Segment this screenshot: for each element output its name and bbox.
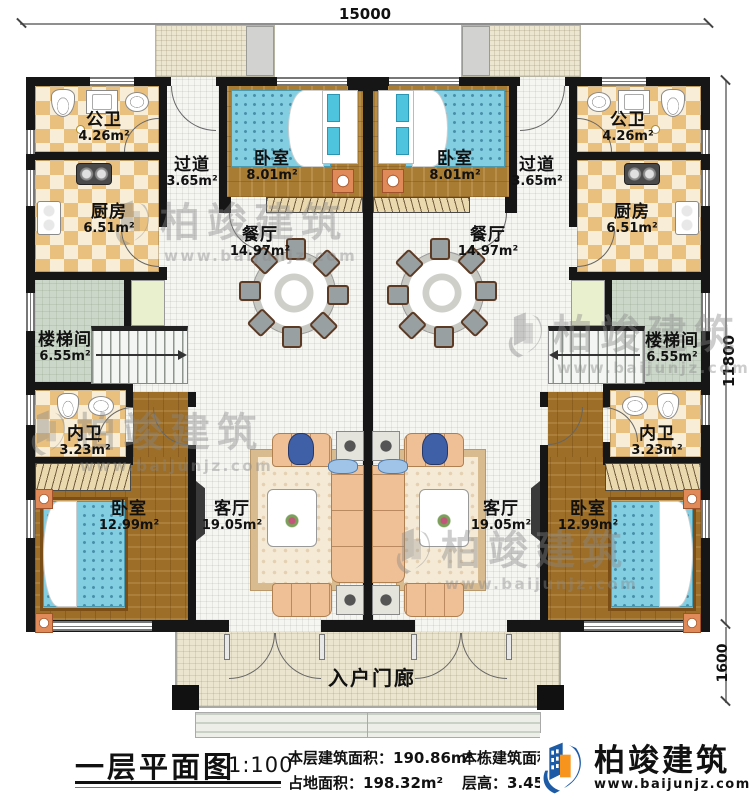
stairs-direction-arrow — [549, 350, 558, 360]
wardrobe — [35, 463, 131, 491]
door-leaf — [506, 634, 512, 660]
stat-floor-area: 本层建筑面积：190.86m² — [288, 747, 473, 768]
wall-bath-kitchen — [26, 152, 167, 160]
side-table — [336, 585, 364, 615]
wall-bottom — [321, 620, 368, 632]
brand-text-block: 柏竣建筑 www.baijunjz.com — [594, 745, 750, 792]
window — [26, 130, 35, 154]
porch-column — [172, 685, 199, 710]
wall-bath-right — [603, 390, 610, 407]
dining-table — [239, 238, 349, 348]
chair — [239, 281, 261, 301]
dimension-line-top — [20, 23, 710, 25]
chair — [430, 238, 450, 260]
window — [90, 77, 134, 86]
entry-steps — [195, 712, 369, 738]
brand-logo-icon — [540, 738, 588, 798]
plan-title: 一层平面图 — [75, 744, 235, 786]
stat-label: 占地面积： — [288, 774, 363, 792]
stairs-direction-arrow — [178, 350, 187, 360]
window — [53, 621, 152, 631]
dining-table — [387, 238, 497, 348]
wall-hall-left — [159, 86, 167, 227]
wall-stub — [124, 280, 131, 326]
window — [277, 77, 347, 86]
bed-sheet — [43, 501, 77, 607]
sofa-main — [372, 465, 405, 583]
washbasin-cabinet-icon — [86, 90, 118, 114]
nightstand — [35, 613, 53, 633]
wall-outer-side — [26, 77, 35, 632]
window — [26, 170, 35, 206]
nightstand — [35, 489, 53, 509]
unit-left — [26, 77, 368, 632]
back-porch — [461, 25, 581, 77]
chair — [387, 285, 409, 305]
unit-right — [368, 77, 710, 632]
window — [701, 170, 710, 206]
door-leaf — [319, 634, 325, 660]
wall-hall-left — [569, 86, 577, 227]
window — [584, 621, 683, 631]
wall-hall-left — [569, 267, 577, 280]
chair — [457, 246, 487, 276]
wall-hall-right — [509, 86, 517, 197]
washbasin-icon — [622, 396, 648, 416]
pillow — [396, 127, 409, 155]
door-leaf — [411, 634, 417, 660]
plan-scale: 1:100 — [228, 753, 294, 777]
porch-pier — [462, 26, 490, 76]
sofa-main — [331, 465, 364, 583]
door-leaf — [224, 634, 230, 660]
side-table — [336, 431, 364, 461]
porch-column — [537, 685, 564, 710]
window — [26, 293, 35, 331]
brand-url: www.baijunjz.com — [594, 777, 750, 792]
door-arc-hall-entry — [171, 86, 216, 131]
wall-bottom — [368, 620, 415, 632]
coffee-table — [267, 489, 317, 547]
chair — [397, 311, 427, 341]
wall-bath-right — [126, 390, 133, 407]
wall-hall-left — [159, 267, 167, 280]
pillow — [327, 94, 340, 122]
bed-sheet — [412, 90, 448, 167]
title-underline — [75, 781, 281, 784]
window — [701, 500, 710, 538]
brand-name: 柏竣建筑 — [594, 745, 750, 777]
window — [701, 395, 710, 425]
kitchen-sink-icon — [37, 201, 61, 235]
washbasin-icon — [125, 92, 149, 112]
person-figure — [288, 433, 314, 465]
window — [26, 500, 35, 538]
porch-pier — [246, 26, 274, 76]
window — [701, 130, 710, 154]
refrigerator-icon — [571, 280, 605, 326]
sofa-armchair — [404, 583, 464, 617]
bed-sheet — [288, 90, 324, 167]
door-arc-hall-entry — [520, 86, 565, 131]
washbasin-cabinet-icon — [618, 90, 650, 114]
brand-logo-block: 柏竣建筑 www.baijunjz.com — [540, 733, 750, 803]
stat-label: 层高： — [462, 774, 507, 792]
wall-kitchen-stair — [26, 272, 167, 280]
chair — [460, 308, 490, 338]
window — [389, 77, 459, 86]
chair — [286, 238, 306, 260]
chair — [475, 281, 497, 301]
wall-stub — [605, 280, 612, 326]
chair — [327, 285, 349, 305]
washbasin-icon — [587, 92, 611, 112]
dimension-top-label: 15000 — [339, 5, 391, 23]
nightstand — [683, 613, 701, 633]
wardrobe — [373, 197, 470, 213]
pillow — [327, 127, 340, 155]
wall-bath-right — [126, 442, 133, 457]
floor-drain-icon — [76, 125, 85, 134]
refrigerator-icon — [131, 280, 165, 326]
washbasin-icon — [88, 396, 114, 416]
wall-bath-kitchen — [569, 152, 710, 160]
stove-icon — [76, 163, 112, 185]
wall-bedroom-top — [219, 197, 231, 213]
chair — [309, 311, 339, 341]
nightstand — [382, 169, 404, 193]
nightstand — [683, 489, 701, 509]
stove-icon — [624, 163, 660, 185]
wall-outer-side — [701, 77, 710, 632]
window — [26, 395, 35, 425]
floor-drain-icon — [651, 125, 660, 134]
person-figure — [328, 459, 358, 474]
stat-land-area: 占地面积：198.32m² — [288, 772, 443, 793]
chair — [247, 308, 277, 338]
stat-label: 本层建筑面积： — [288, 749, 393, 767]
wardrobe — [605, 463, 701, 491]
chair — [434, 326, 454, 348]
stairs-direction-line — [96, 354, 180, 356]
dimension-right-lower-label: 1600 — [715, 633, 731, 693]
tv-icon — [531, 481, 540, 541]
window — [602, 77, 646, 86]
title-underline-thin — [75, 787, 281, 788]
kitchen-sink-icon — [675, 201, 699, 235]
wall-kitchen-stair — [569, 272, 710, 280]
chair — [312, 248, 342, 278]
pillow — [396, 94, 409, 122]
wall-living-left — [188, 445, 196, 620]
tv-icon — [196, 481, 205, 541]
wall-bath-right — [603, 442, 610, 457]
nightstand — [332, 169, 354, 193]
wall-bedroom-top — [505, 197, 517, 213]
floor-plan-canvas: 15000 11800 1600 — [0, 0, 750, 803]
wardrobe — [266, 197, 363, 213]
bed-sheet — [659, 501, 693, 607]
back-porch — [155, 25, 275, 77]
wall-living-left — [540, 445, 548, 620]
entry-steps — [367, 712, 541, 738]
person-figure — [378, 459, 408, 474]
chair — [395, 248, 425, 278]
coffee-table — [419, 489, 469, 547]
stairs-direction-line — [556, 354, 640, 356]
chair — [249, 246, 279, 276]
side-table — [372, 585, 400, 615]
wall-hall-right — [219, 86, 227, 197]
wall-living-left — [188, 392, 196, 407]
wall-living-left — [540, 392, 548, 407]
person-figure — [422, 433, 448, 465]
window — [701, 293, 710, 331]
chair — [282, 326, 302, 348]
sofa-armchair — [272, 583, 332, 617]
dimension-right-label: 11800 — [720, 331, 738, 391]
stat-value: 198.32m² — [363, 774, 443, 792]
side-table — [372, 431, 400, 461]
